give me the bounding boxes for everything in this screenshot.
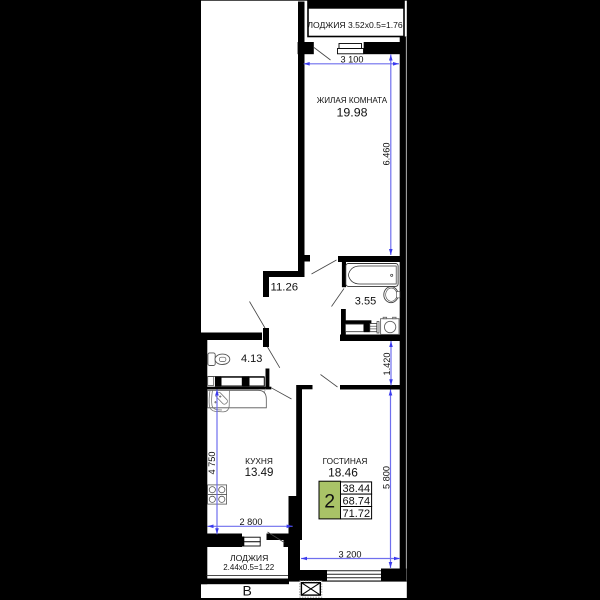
svg-text:2.44x0.5=1.22: 2.44x0.5=1.22 (223, 563, 274, 572)
svg-text:ЛОДЖИЯ 3.52x0.5=1.76: ЛОДЖИЯ 3.52x0.5=1.76 (307, 20, 403, 30)
svg-text:ЖИЛАЯ КОМНАТА: ЖИЛАЯ КОМНАТА (317, 96, 388, 105)
svg-text:1.420: 1.420 (382, 353, 392, 376)
svg-text:КУХНЯ: КУХНЯ (245, 456, 273, 466)
svg-text:5 800: 5 800 (382, 466, 392, 489)
svg-text:18.46: 18.46 (328, 466, 358, 480)
svg-text:ГОСТИНАЯ: ГОСТИНАЯ (323, 456, 368, 466)
svg-text:13.49: 13.49 (245, 467, 274, 479)
svg-text:3 100: 3 100 (341, 55, 364, 65)
svg-text:68.74: 68.74 (343, 495, 371, 507)
svg-text:2 800: 2 800 (240, 517, 263, 527)
svg-text:ЛОДЖИЯ: ЛОДЖИЯ (230, 553, 268, 563)
svg-text:71.72: 71.72 (343, 508, 371, 520)
svg-text:19.98: 19.98 (336, 106, 367, 120)
svg-text:4.13: 4.13 (241, 353, 262, 365)
svg-text:11.26: 11.26 (270, 282, 298, 294)
svg-text:3.55: 3.55 (355, 296, 376, 308)
svg-text:2: 2 (324, 491, 335, 513)
svg-text:В: В (243, 583, 252, 599)
svg-text:3 200: 3 200 (339, 549, 362, 559)
svg-text:38.44: 38.44 (343, 483, 371, 495)
svg-text:6.460: 6.460 (382, 143, 392, 166)
svg-text:4 750: 4 750 (207, 452, 217, 475)
